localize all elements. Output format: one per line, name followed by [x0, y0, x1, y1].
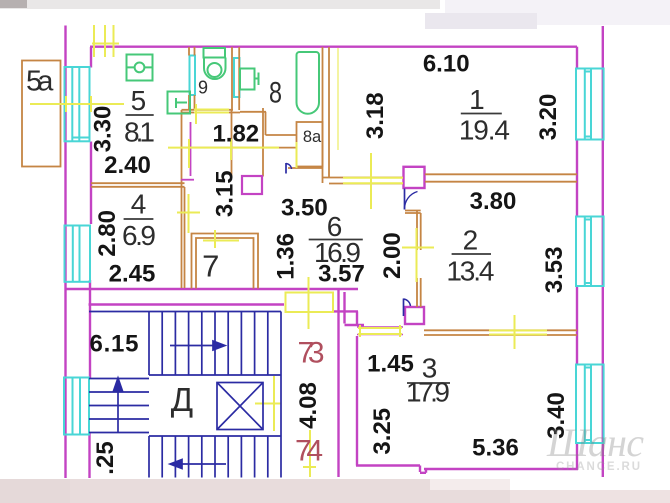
svg-text:2.40: 2.40 [104, 152, 151, 179]
svg-text:3.15: 3.15 [212, 170, 239, 217]
svg-text:5a: 5a [26, 66, 54, 98]
svg-text:2.45: 2.45 [109, 261, 156, 288]
svg-text:3.18: 3.18 [362, 92, 389, 139]
svg-text:Д: Д [171, 381, 193, 418]
svg-text:6.9: 6.9 [122, 220, 156, 251]
svg-text:13.4: 13.4 [446, 256, 494, 287]
svg-text:19.4: 19.4 [459, 115, 510, 146]
svg-text:2.80: 2.80 [94, 210, 121, 257]
svg-text:8: 8 [269, 77, 282, 110]
svg-text:Шанс: Шанс [546, 420, 644, 465]
svg-text:8a: 8a [303, 128, 322, 146]
svg-text:7: 7 [202, 249, 219, 284]
svg-text:1.45: 1.45 [367, 351, 414, 378]
svg-text:74: 74 [295, 435, 323, 468]
svg-text:2.00: 2.00 [379, 232, 406, 279]
svg-text:CHANCE.RU: CHANCE.RU [556, 461, 640, 473]
svg-text:1: 1 [469, 84, 485, 115]
svg-text:3.53: 3.53 [541, 247, 568, 294]
svg-text:9: 9 [198, 78, 208, 98]
svg-text:1.36: 1.36 [273, 233, 300, 280]
svg-text:.25: .25 [92, 441, 119, 474]
svg-text:2: 2 [463, 225, 479, 256]
svg-text:17.9: 17.9 [406, 377, 450, 408]
svg-text:3.20: 3.20 [535, 94, 562, 141]
svg-text:3.80: 3.80 [470, 188, 517, 215]
svg-text:3.30: 3.30 [90, 106, 117, 153]
svg-text:1.82: 1.82 [212, 121, 259, 148]
svg-text:3.50: 3.50 [281, 195, 328, 222]
svg-text:5.36: 5.36 [472, 435, 519, 462]
svg-text:73: 73 [298, 337, 325, 370]
svg-text:6.15: 6.15 [90, 331, 139, 358]
svg-text:3.25: 3.25 [369, 408, 396, 455]
svg-text:4.08: 4.08 [295, 382, 322, 429]
svg-text:4: 4 [131, 189, 147, 220]
svg-text:8.1: 8.1 [124, 117, 155, 148]
svg-text:3.57: 3.57 [318, 261, 365, 288]
svg-text:5: 5 [131, 85, 147, 116]
svg-text:6.10: 6.10 [423, 51, 470, 78]
